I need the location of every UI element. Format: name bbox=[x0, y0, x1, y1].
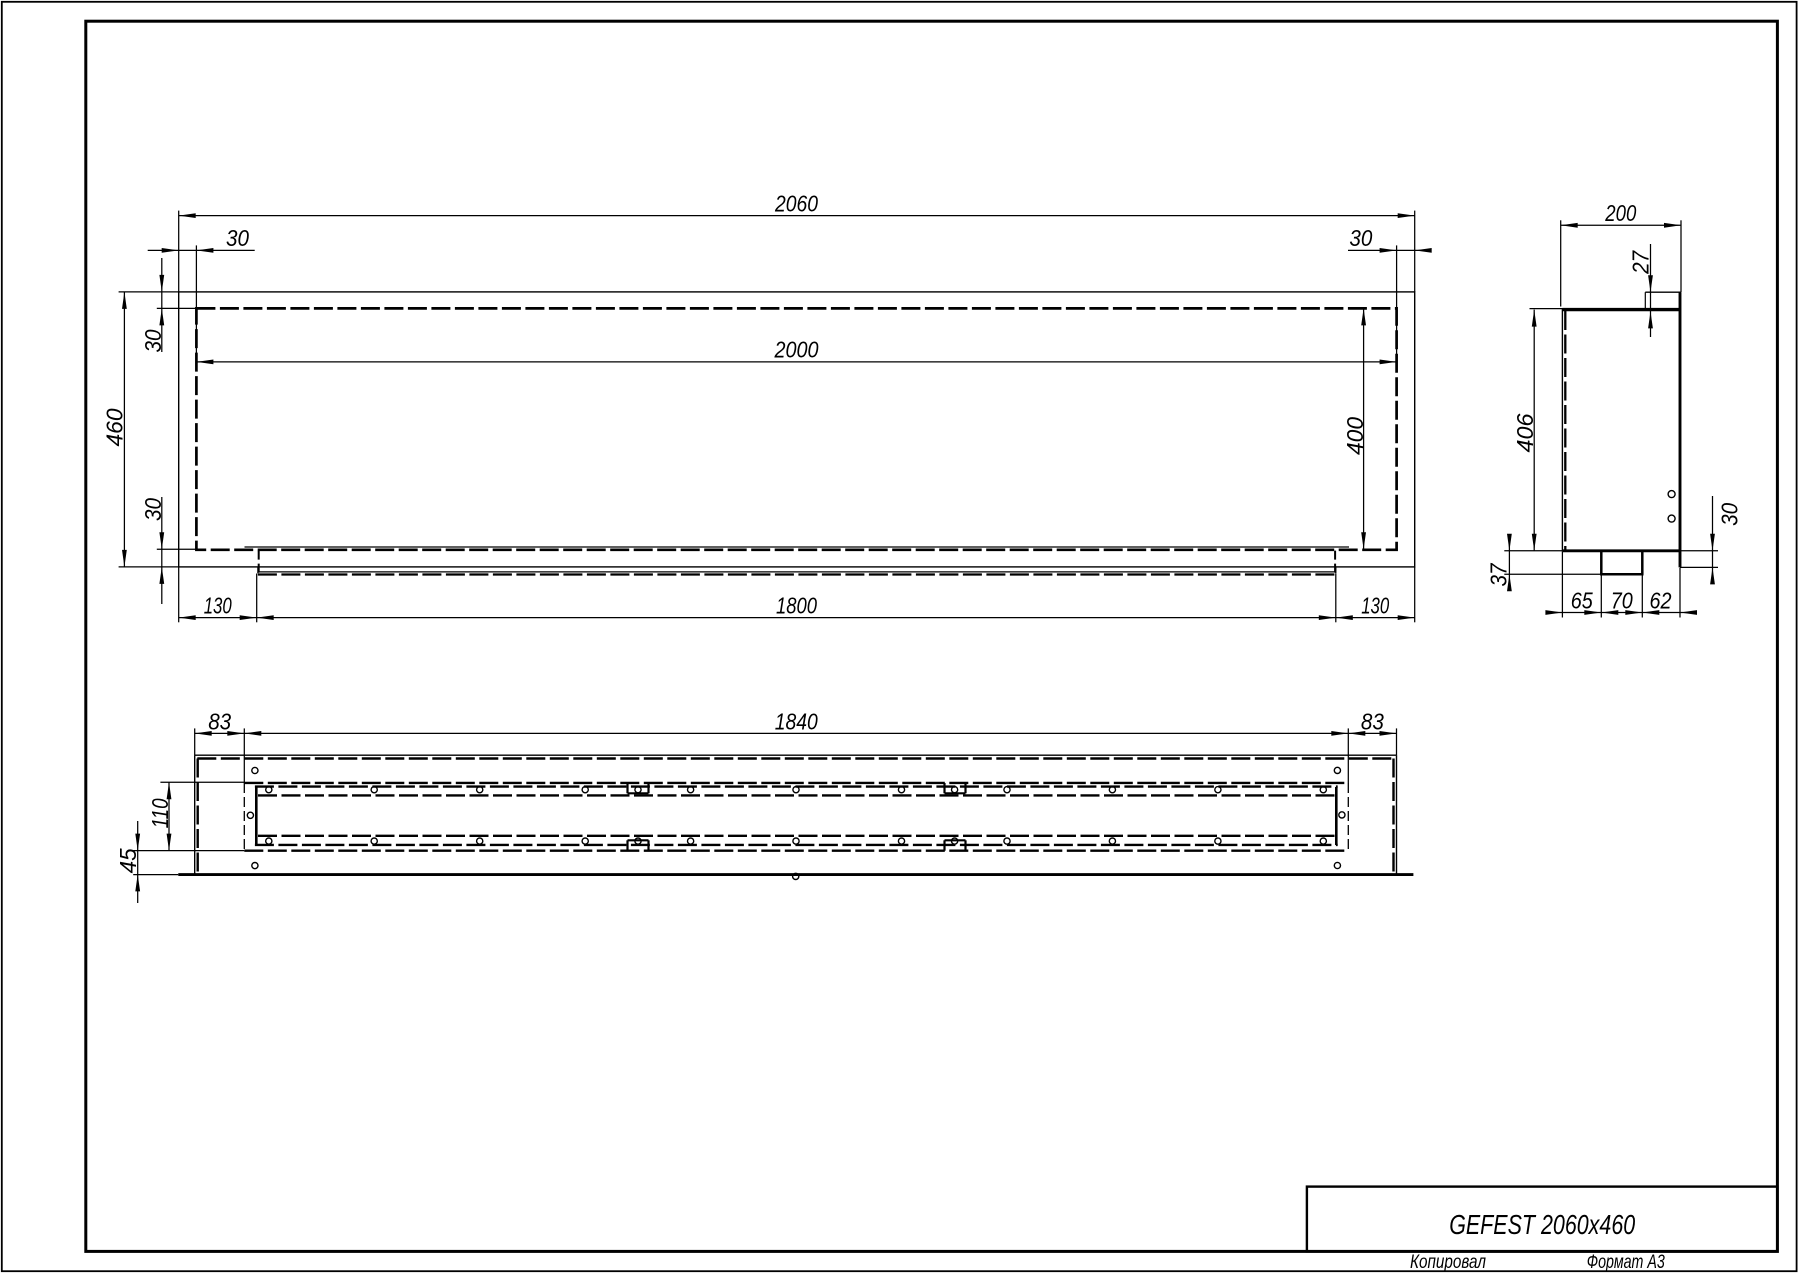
svg-text:GEFEST 2060x460: GEFEST 2060x460 bbox=[1449, 1209, 1636, 1240]
svg-text:1840: 1840 bbox=[775, 708, 818, 734]
svg-text:65: 65 bbox=[1571, 587, 1593, 613]
svg-text:30: 30 bbox=[1716, 503, 1742, 526]
svg-text:30: 30 bbox=[140, 329, 166, 352]
svg-text:130: 130 bbox=[204, 592, 232, 618]
svg-text:30: 30 bbox=[140, 498, 166, 521]
svg-text:Копировал: Копировал bbox=[1410, 1252, 1486, 1273]
svg-text:70: 70 bbox=[1611, 587, 1633, 613]
svg-text:130: 130 bbox=[1361, 592, 1389, 618]
svg-text:460: 460 bbox=[102, 408, 128, 446]
svg-text:27: 27 bbox=[1627, 250, 1653, 275]
svg-text:1800: 1800 bbox=[776, 592, 817, 618]
svg-text:400: 400 bbox=[1342, 417, 1368, 455]
svg-text:30: 30 bbox=[226, 225, 249, 251]
svg-text:62: 62 bbox=[1650, 587, 1672, 613]
svg-text:110: 110 bbox=[147, 798, 173, 828]
svg-text:406: 406 bbox=[1512, 413, 1538, 452]
svg-text:200: 200 bbox=[1604, 200, 1636, 226]
svg-text:45: 45 bbox=[115, 848, 141, 873]
svg-text:2060: 2060 bbox=[774, 190, 818, 216]
svg-text:83: 83 bbox=[1361, 708, 1384, 734]
svg-text:2000: 2000 bbox=[774, 337, 819, 363]
svg-text:83: 83 bbox=[208, 708, 231, 734]
svg-text:30: 30 bbox=[1349, 225, 1372, 251]
svg-text:Формат А3: Формат А3 bbox=[1587, 1252, 1665, 1273]
